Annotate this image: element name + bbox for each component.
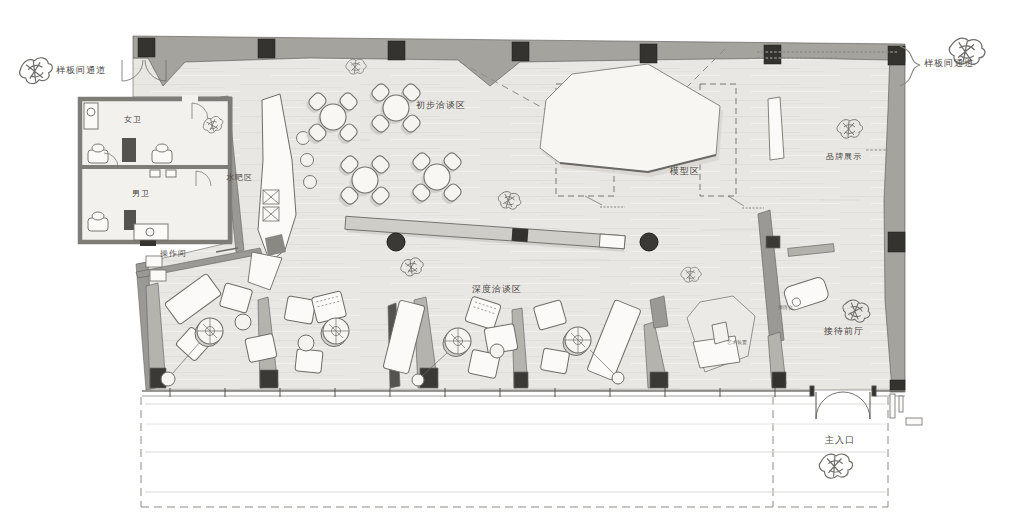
floorplan-canvas: 样板间通道 样板间通道 女卫 男卫 水吧区 操作间 初步洽谈区 模型区 品牌展示…: [0, 0, 1025, 519]
toilet-block: [80, 95, 230, 246]
label-reception-desk: 接待台: [778, 305, 793, 310]
label-corridor-left: 样板间通道: [56, 66, 106, 75]
label-corridor-right: 样板间通道: [924, 59, 974, 68]
label-preliminary-meeting: 初步洽谈区: [416, 101, 466, 110]
label-reception-hall: 接待前厅: [824, 327, 864, 336]
label-deep-meeting: 深度洽谈区: [472, 285, 522, 294]
label-model-area: 模型区: [670, 167, 700, 176]
label-womens-restroom: 女卫: [124, 116, 142, 124]
entrance-plaza: [141, 397, 888, 507]
label-brand-display: 品牌展示: [826, 153, 862, 161]
main-entrance-door: [810, 386, 876, 419]
plant-icon: [819, 454, 852, 478]
round-column: [640, 233, 658, 251]
floorplan-drawing: [0, 0, 1025, 519]
label-main-entrance: 主入口: [825, 436, 855, 445]
plant-icon: [18, 56, 55, 85]
label-operation-room: 操作间: [160, 250, 187, 258]
round-column: [387, 233, 405, 251]
label-art-installation: 艺术装置: [727, 340, 747, 345]
label-mens-restroom: 男卫: [132, 190, 150, 198]
side-exit: [890, 394, 922, 425]
label-water-bar: 水吧区: [226, 174, 253, 182]
